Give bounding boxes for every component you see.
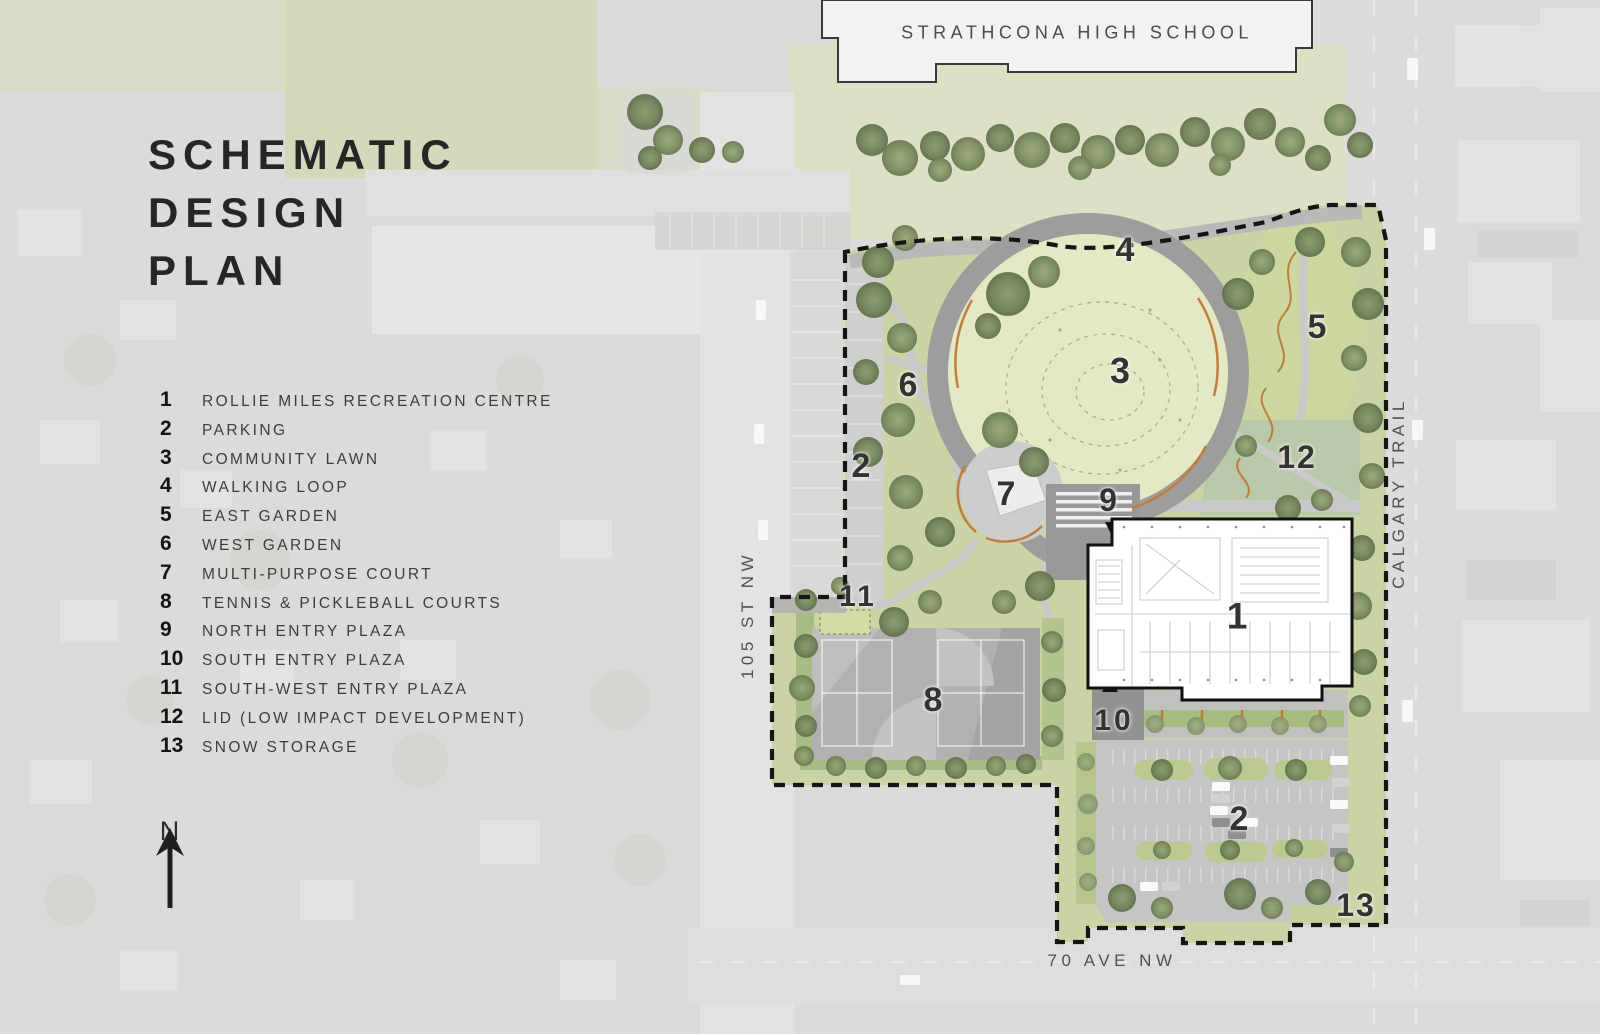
recreation-centre-building bbox=[1088, 519, 1352, 700]
schematic-design-plan-page: SCHEMATIC DESIGN PLAN 1ROLLIE MILES RECR… bbox=[0, 0, 1600, 1034]
school-building bbox=[822, 0, 1312, 82]
road-72-ave bbox=[365, 170, 850, 216]
site-plan-artwork bbox=[0, 0, 1600, 1034]
road-70-ave bbox=[688, 928, 1600, 1004]
